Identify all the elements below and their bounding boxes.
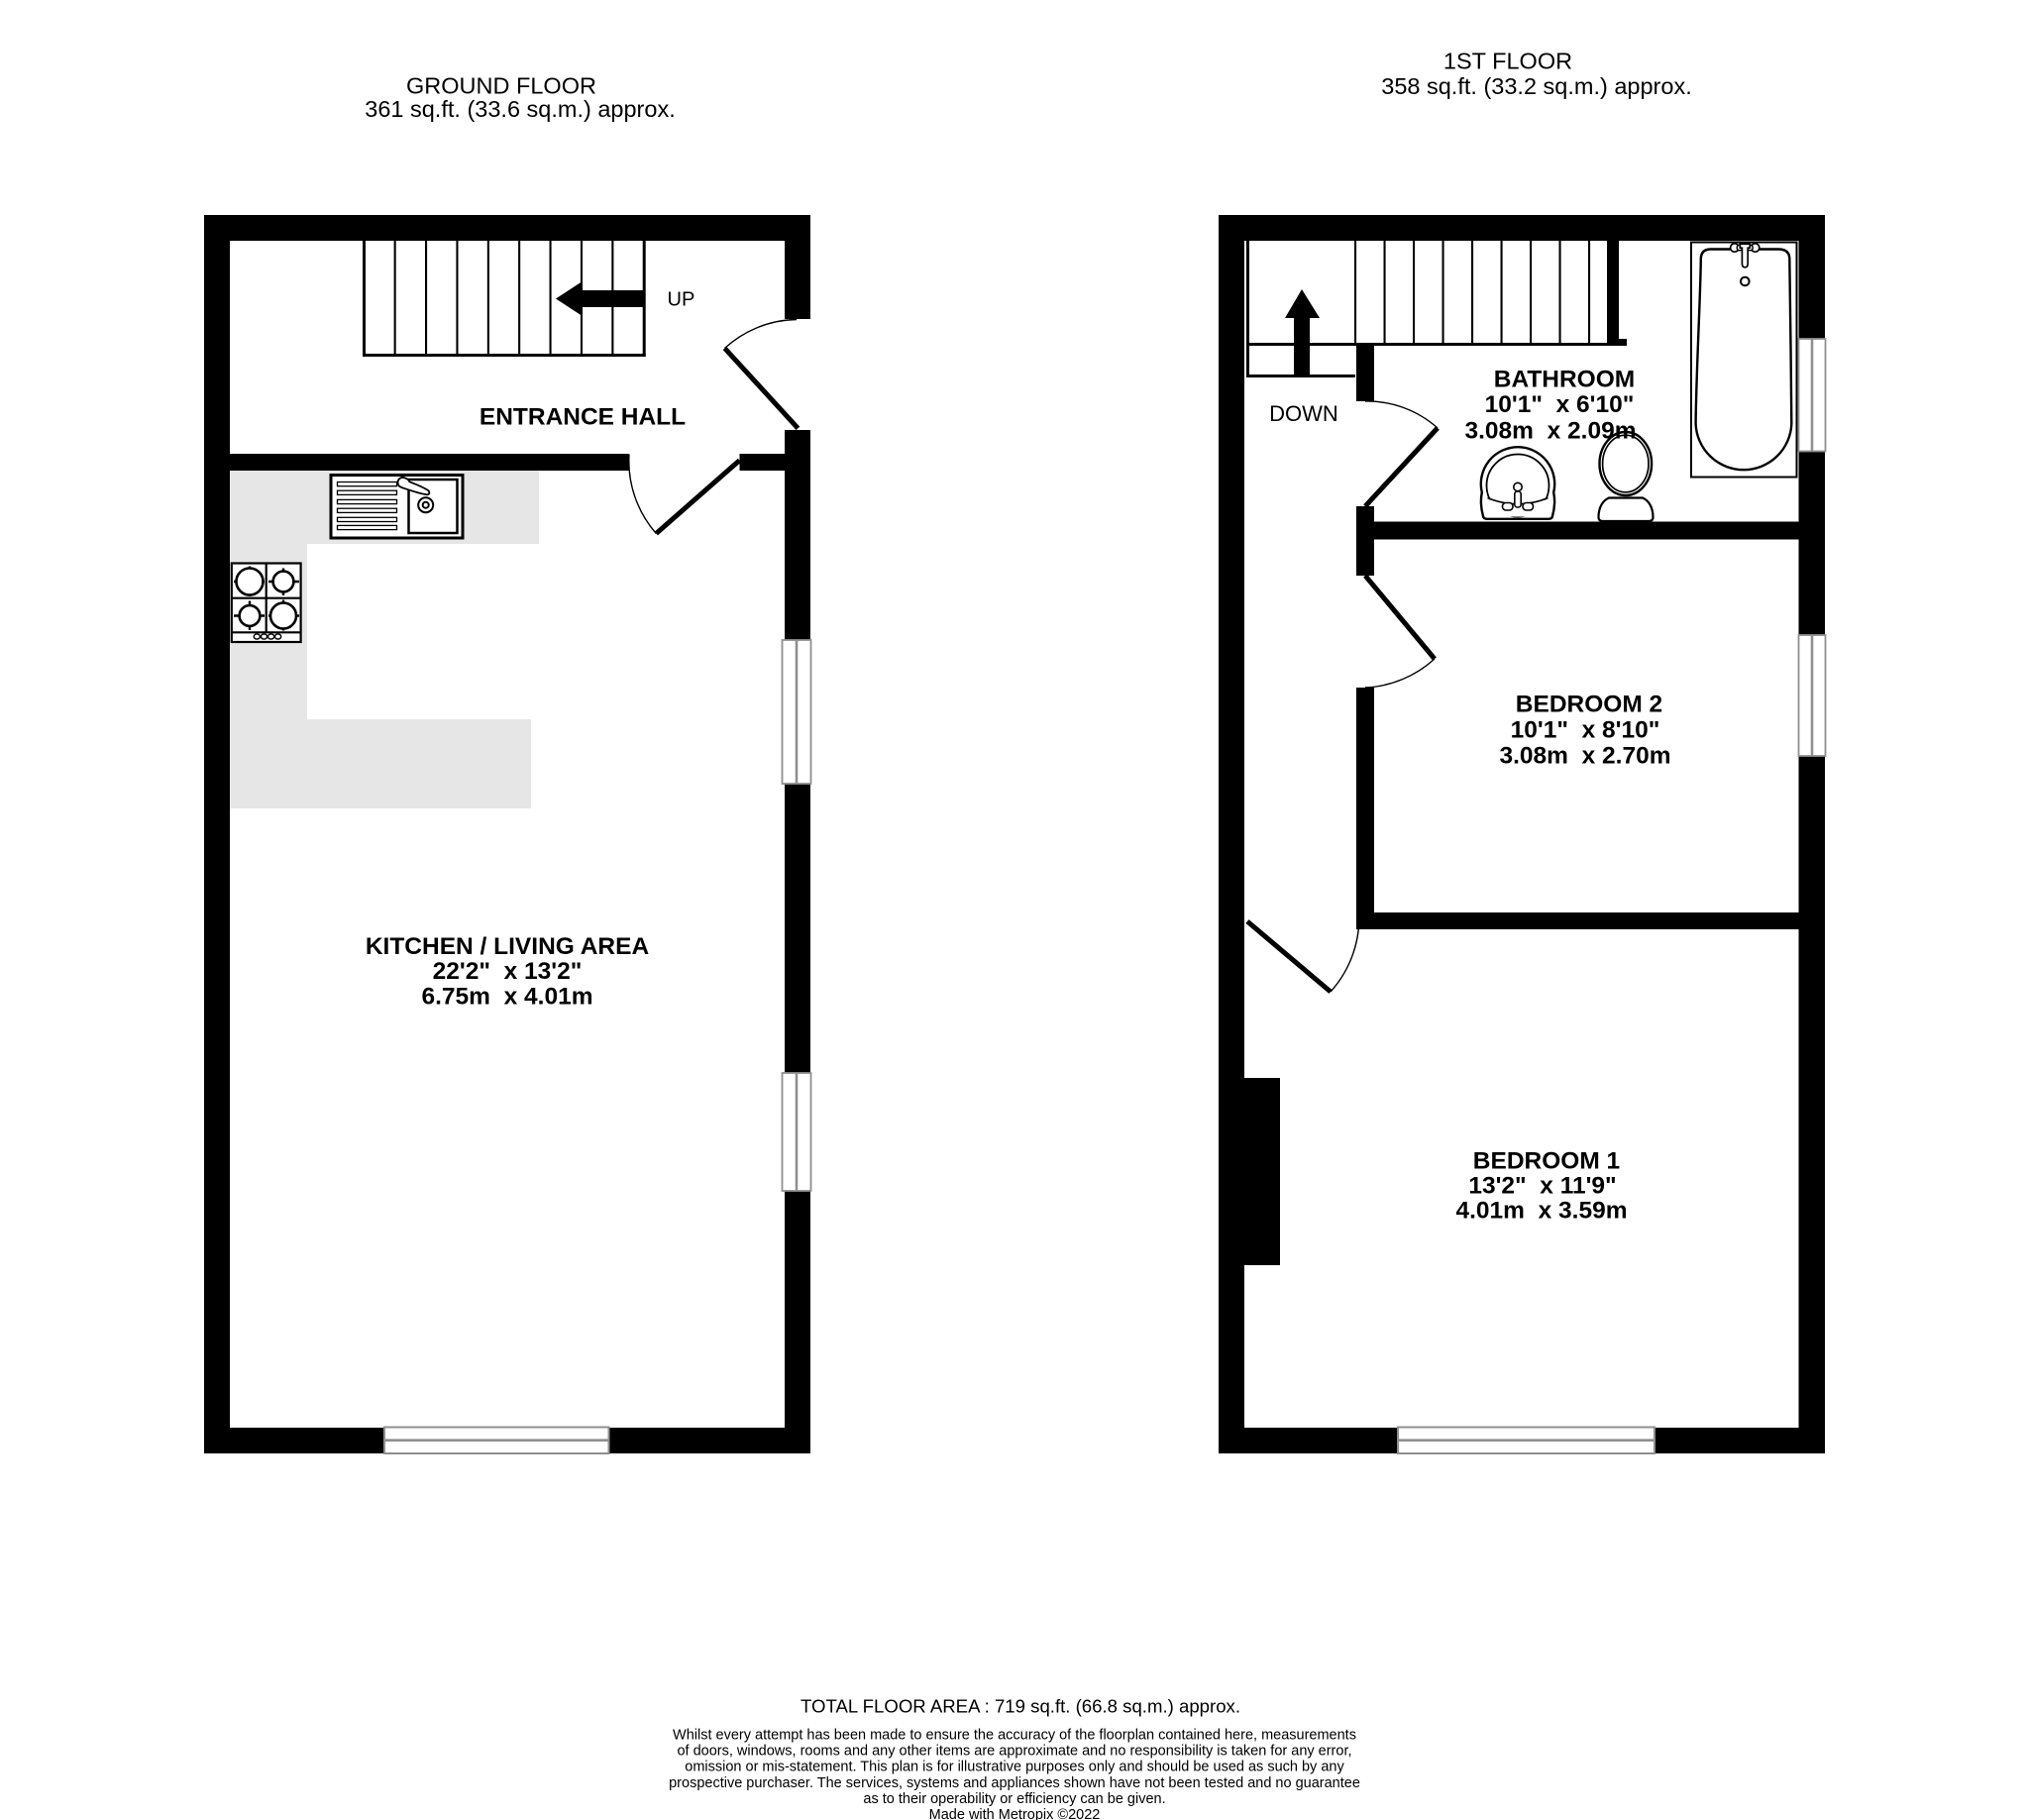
svg-text:3.08m x 2.09m: 3.08m x 2.09m [1465,418,1637,445]
svg-text:Whilst every attempt has been: Whilst every attempt has been made to en… [673,1728,1356,1744]
svg-text:10'1" x 8'10": 10'1" x 8'10" [1511,716,1660,743]
svg-text:GROUND FLOOR: GROUND FLOOR [406,73,596,99]
svg-text:361 sq.ft. (33.6 sq.m.) approx: 361 sq.ft. (33.6 sq.m.) approx. [365,96,676,122]
svg-text:DOWN: DOWN [1269,401,1338,426]
svg-text:UP: UP [668,289,695,311]
svg-text:BEDROOM 2: BEDROOM 2 [1516,691,1662,717]
svg-text:22'2" x 13'2": 22'2" x 13'2" [433,958,583,985]
svg-text:TOTAL FLOOR AREA : 719 sq.ft.: TOTAL FLOOR AREA : 719 sq.ft. (66.8 sq.m… [801,1696,1240,1717]
svg-text:10'1" x 6'10": 10'1" x 6'10" [1485,391,1635,418]
svg-text:3.08m x 2.70m: 3.08m x 2.70m [1500,742,1671,769]
svg-text:KITCHEN / LIVING AREA: KITCHEN / LIVING AREA [366,933,650,960]
svg-text:BEDROOM 1: BEDROOM 1 [1473,1147,1620,1174]
svg-text:Made with Metropix ©2022: Made with Metropix ©2022 [929,1807,1101,1820]
svg-text:ENTRANCE HALL: ENTRANCE HALL [480,403,686,430]
svg-text:BATHROOM: BATHROOM [1494,367,1635,393]
svg-text:as to their operability or eff: as to their operability or efficiency ca… [863,1791,1165,1807]
svg-text:of doors, windows, rooms and a: of doors, windows, rooms and any other i… [677,1744,1351,1760]
svg-text:omission or mis-statement. Thi: omission or mis-statement. This plan is … [685,1760,1344,1775]
svg-text:4.01m x 3.59m: 4.01m x 3.59m [1456,1198,1628,1225]
svg-text:prospective purchaser. The ser: prospective purchaser. The services, sys… [669,1775,1360,1791]
svg-text:1ST FLOOR: 1ST FLOOR [1443,48,1572,73]
svg-text:13'2" x 11'9": 13'2" x 11'9" [1468,1173,1616,1200]
svg-text:358 sq.ft. (33.2 sq.m.) approx: 358 sq.ft. (33.2 sq.m.) approx. [1381,73,1692,99]
svg-text:6.75m x 4.01m: 6.75m x 4.01m [422,984,593,1011]
